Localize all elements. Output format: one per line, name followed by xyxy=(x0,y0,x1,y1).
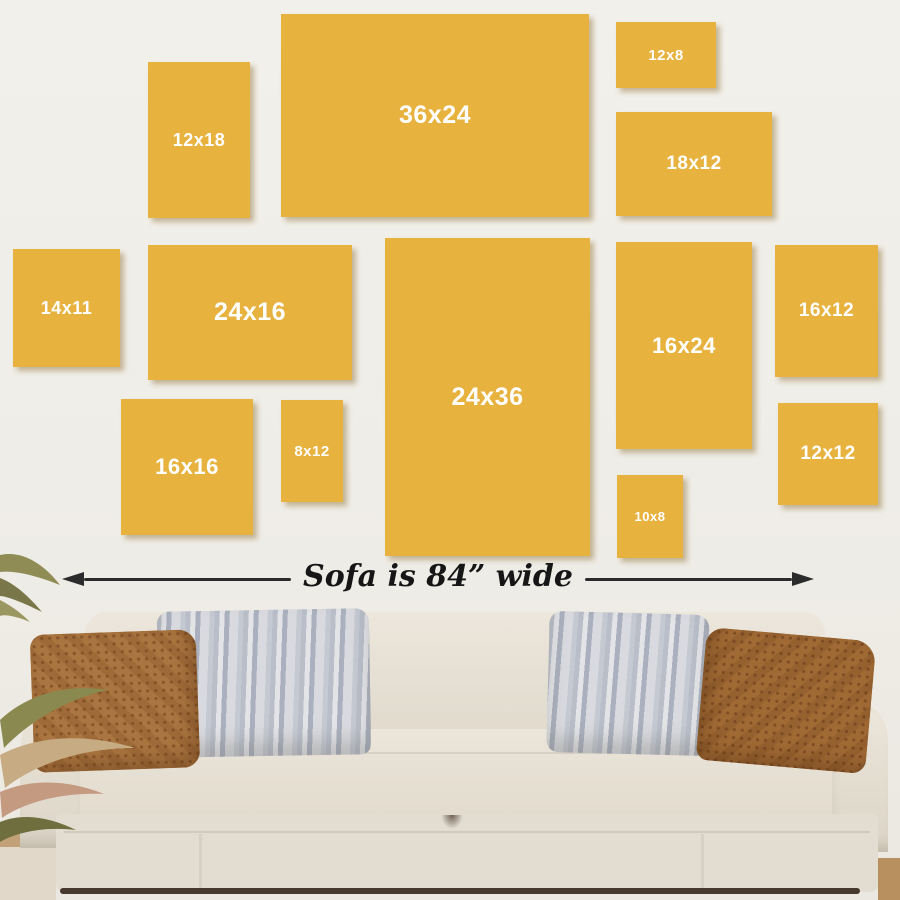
arrow-right-icon xyxy=(792,572,814,586)
frame-16x24: 16x24 xyxy=(616,242,752,449)
frame-size-guide-scene: 12x1836x2412x818x1214x1124x1616x168x1224… xyxy=(0,0,900,900)
plant-leaf xyxy=(0,688,108,748)
frame-size-label: 16x16 xyxy=(155,454,219,480)
plant-leaf xyxy=(0,554,60,585)
frame-12x8: 12x8 xyxy=(616,22,716,88)
frame-size-label: 12x18 xyxy=(173,130,226,151)
frame-size-label: 10x8 xyxy=(635,509,666,524)
frame-8x12: 8x12 xyxy=(281,400,343,502)
frame-size-label: 24x36 xyxy=(451,383,523,412)
frame-12x18: 12x18 xyxy=(148,62,250,218)
sofa-skirt-seam-left xyxy=(199,834,202,890)
frame-24x36: 24x36 xyxy=(385,238,590,556)
plant-leaf xyxy=(0,782,104,818)
frame-size-label: 14x11 xyxy=(41,298,93,319)
frame-14x11: 14x11 xyxy=(13,249,120,367)
frame-size-label: 24x16 xyxy=(214,298,286,327)
frame-24x16: 24x16 xyxy=(148,245,352,380)
frame-size-label: 8x12 xyxy=(294,443,329,460)
plant-leaves xyxy=(0,540,150,870)
pillow-brown-patterned-right xyxy=(696,627,877,774)
frame-16x16: 16x16 xyxy=(121,399,253,535)
frame-size-label: 36x24 xyxy=(399,101,471,130)
sofa-skirt-seam-right xyxy=(701,834,704,890)
frame-size-label: 12x12 xyxy=(800,443,855,465)
floor-strip-right xyxy=(878,858,900,900)
frame-size-label: 16x24 xyxy=(652,333,716,359)
frame-36x24: 36x24 xyxy=(281,14,589,217)
sofa-base-skirt xyxy=(56,814,878,892)
frame-12x12: 12x12 xyxy=(778,403,878,505)
measure-line-right xyxy=(585,578,792,581)
frame-size-label: 18x12 xyxy=(666,153,721,175)
sofa-cushion-gap xyxy=(441,815,463,829)
frame-18x12: 18x12 xyxy=(616,112,772,216)
plant-leaf xyxy=(0,817,76,842)
frame-16x12: 16x12 xyxy=(775,245,878,377)
sofa-skirt-seam xyxy=(64,831,870,833)
plant-leaf xyxy=(0,738,135,788)
sofa-width-measurement: Sofa is 84” wide xyxy=(62,560,814,598)
sofa-width-label: Sofa is 84” wide xyxy=(291,559,585,594)
frame-size-label: 16x12 xyxy=(799,300,854,322)
frame-size-label: 12x8 xyxy=(648,47,683,64)
sofa-floor-shadow xyxy=(60,888,860,894)
frame-10x8: 10x8 xyxy=(617,475,683,558)
pillow-gray-striped-right xyxy=(546,611,710,756)
